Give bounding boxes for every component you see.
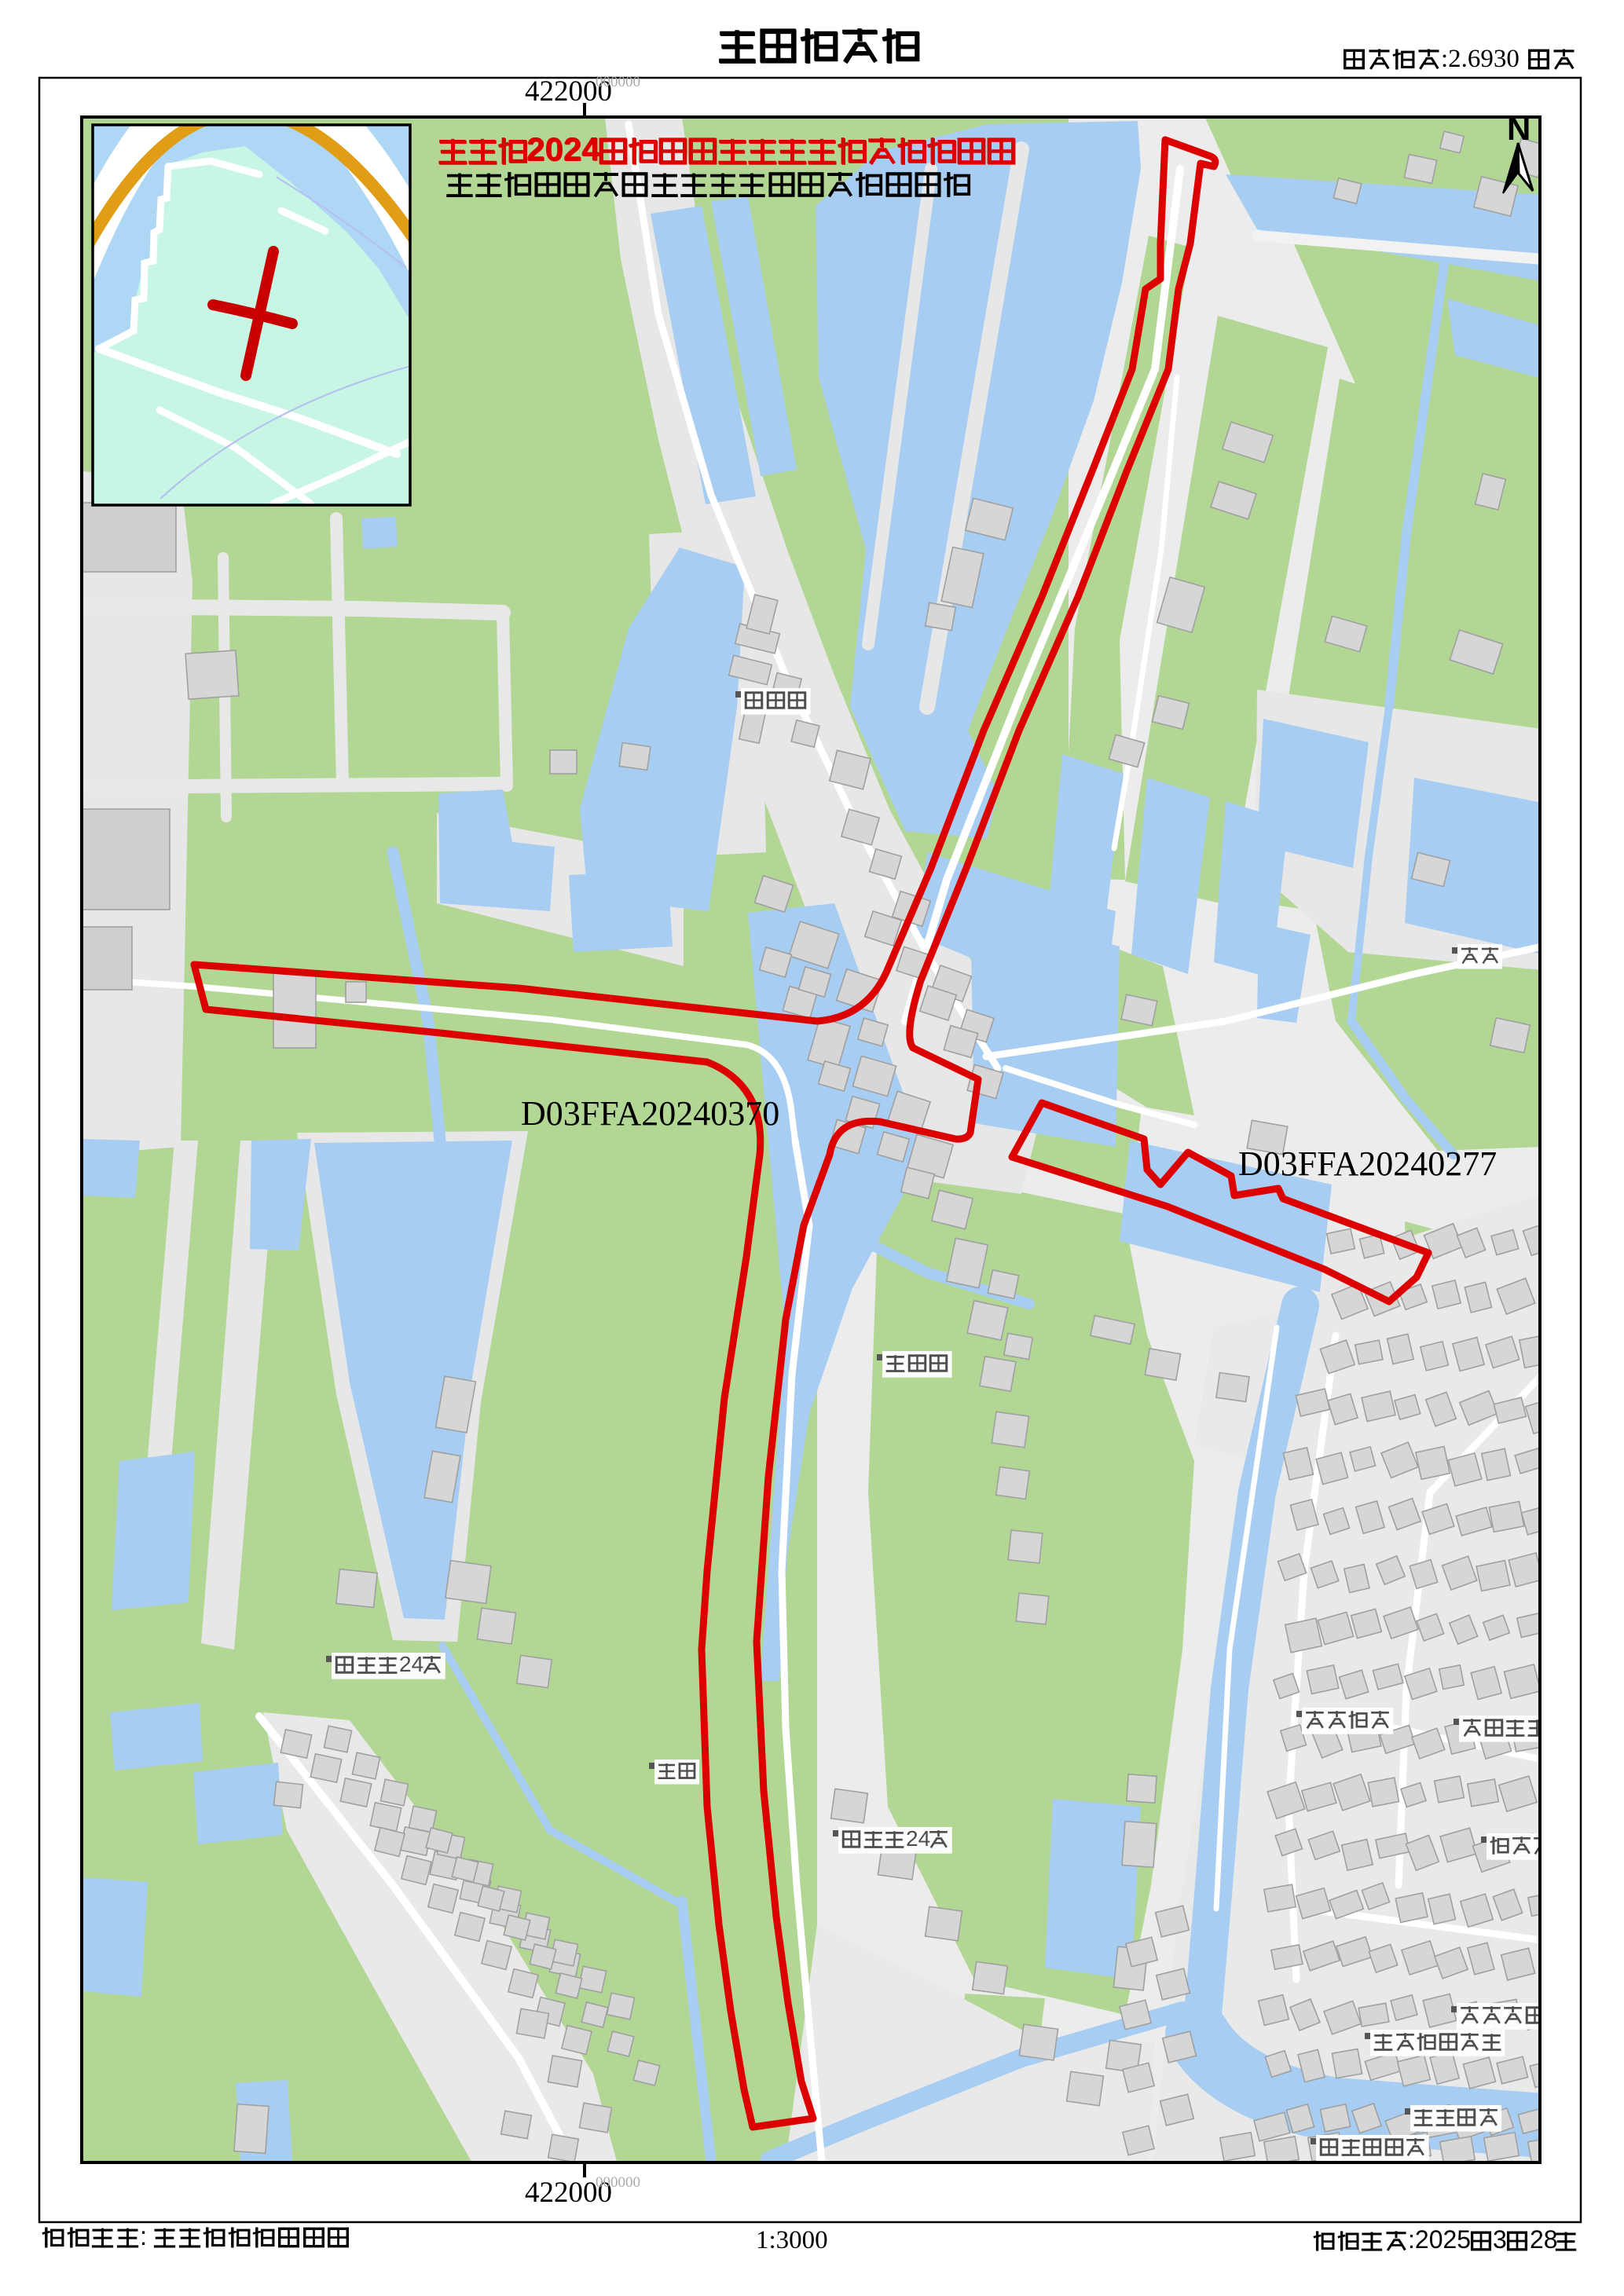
svg-text:28: 28 (1530, 2225, 1558, 2254)
svg-text:000000: 000000 (596, 2174, 640, 2191)
svg-text:D03FFA20240277: D03FFA20240277 (1238, 1144, 1497, 1183)
svg-text:3: 3 (1493, 2225, 1507, 2254)
svg-text:000000: 000000 (596, 74, 640, 90)
svg-text::2.6930: :2.6930 (1441, 45, 1520, 73)
svg-text:24: 24 (906, 1826, 930, 1851)
svg-text:D03FFA20240370: D03FFA20240370 (521, 1094, 779, 1133)
svg-text::2025: :2025 (1408, 2225, 1471, 2254)
svg-text:1:3000: 1:3000 (756, 2226, 828, 2254)
svg-text:2024: 2024 (527, 131, 601, 168)
svg-text:24: 24 (399, 1652, 423, 1676)
svg-text::: : (140, 2221, 147, 2250)
